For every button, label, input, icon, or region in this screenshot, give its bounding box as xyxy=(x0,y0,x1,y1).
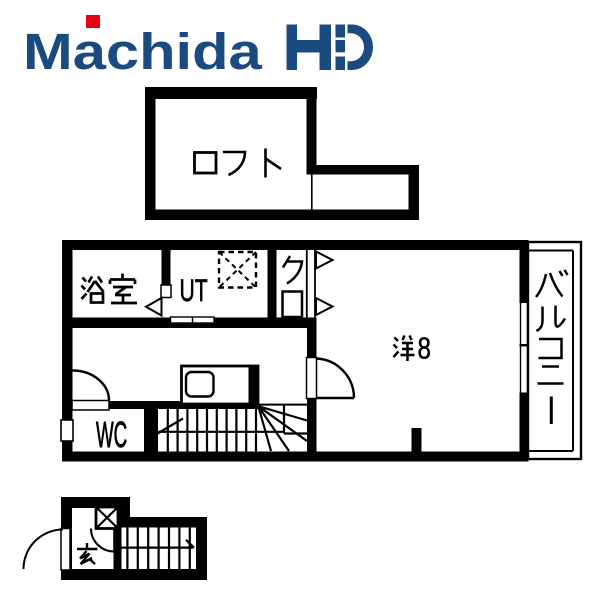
svg-text:WC: WC xyxy=(96,416,127,456)
svg-text:8: 8 xyxy=(418,331,431,366)
svg-text:Machida: Machida xyxy=(23,23,263,80)
svg-text:UT: UT xyxy=(180,273,208,308)
